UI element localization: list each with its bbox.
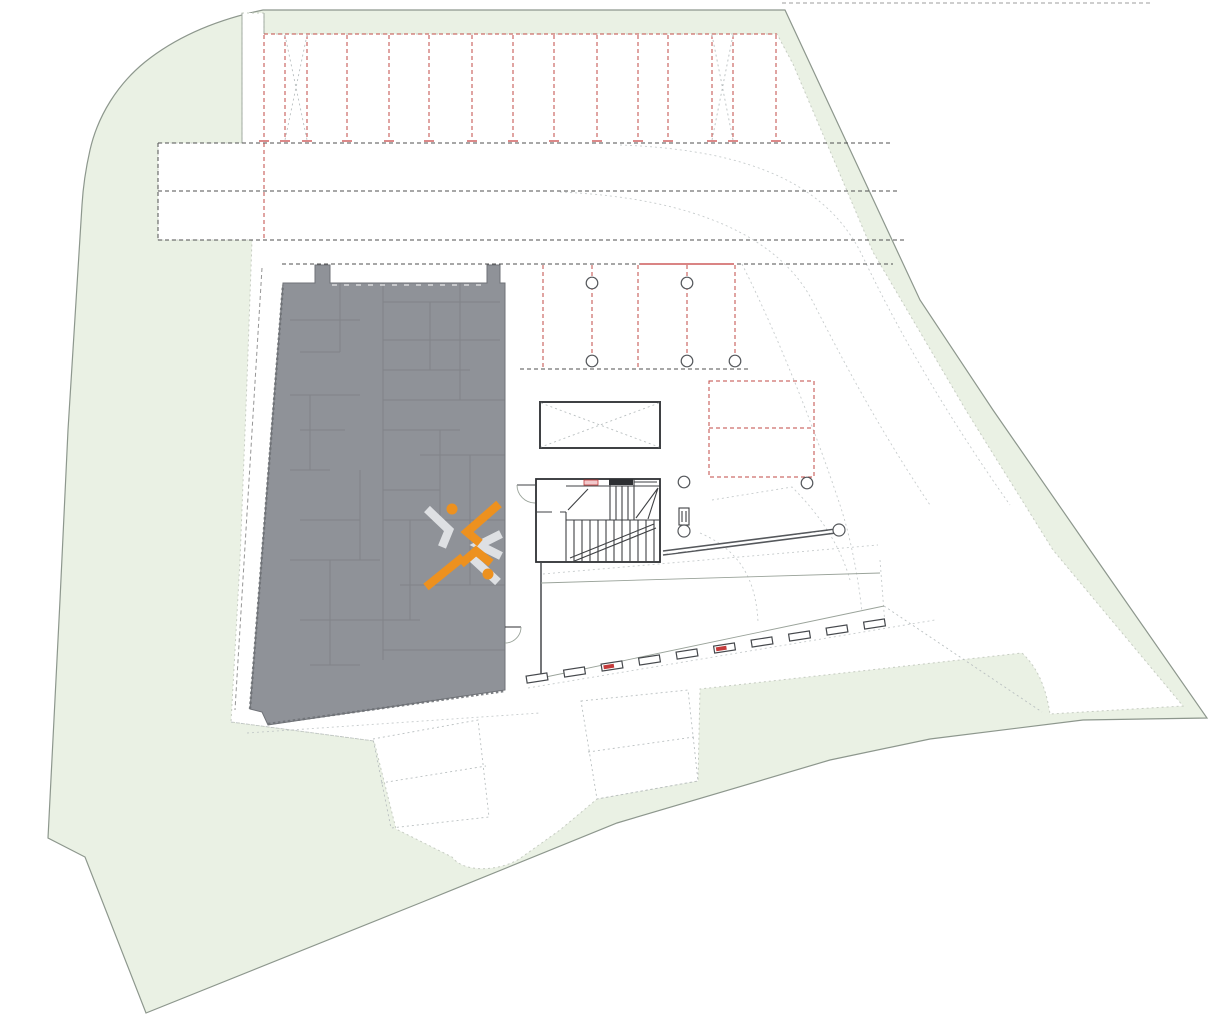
building-mass bbox=[250, 265, 505, 725]
stair-wall-black bbox=[609, 479, 633, 485]
column-icon bbox=[586, 277, 598, 289]
column-icon bbox=[681, 355, 693, 367]
column-icon bbox=[586, 355, 598, 367]
barrier-pivot bbox=[833, 524, 845, 536]
column-icon bbox=[678, 525, 690, 537]
column-icon bbox=[678, 476, 690, 488]
stair-red-marker bbox=[584, 480, 598, 485]
vent-shaft bbox=[540, 402, 660, 448]
column-icon bbox=[681, 277, 693, 289]
site-plan-page bbox=[0, 0, 1222, 1024]
column-icon bbox=[729, 355, 741, 367]
logo-dot-bottom bbox=[483, 569, 494, 580]
column-icon bbox=[801, 477, 813, 489]
logo-dot-top bbox=[447, 504, 458, 515]
site-plan-canvas bbox=[0, 0, 1222, 1024]
vent-shaft-box bbox=[540, 402, 660, 448]
